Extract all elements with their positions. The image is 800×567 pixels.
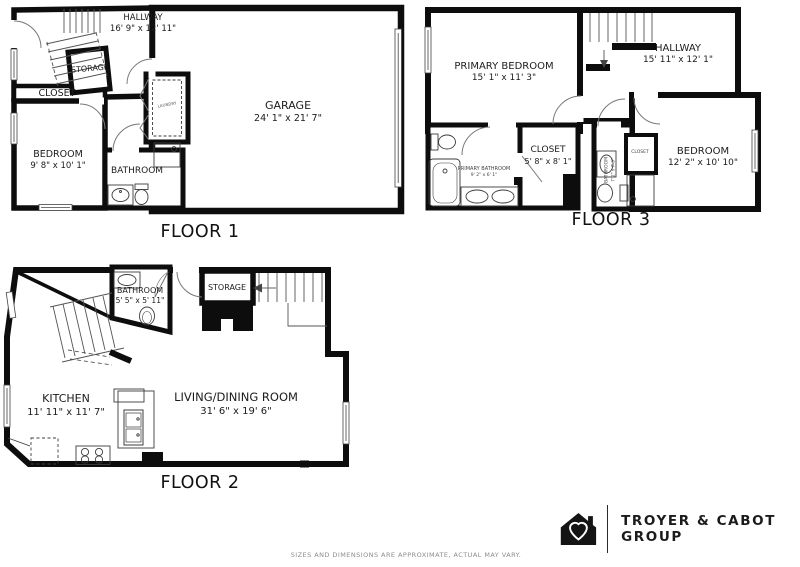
room-label-f1-hallway: HALLWAY 16' 9" x 12' 11" [110, 13, 176, 35]
room-label-f1-closet: CLOSET [39, 88, 76, 100]
floor2-plan [4, 267, 349, 468]
floor3-plan [425, 10, 758, 209]
room-name: CLOSET [631, 150, 648, 155]
room-label-f2-bathroom: BATHROOM 5' 5" x 5' 11" [116, 286, 165, 306]
plumbing-wall [563, 174, 578, 207]
room-label-f3-closet: CLOSET 5' 8" x 8' 1" [524, 145, 571, 167]
room-label-f3-bedroom: BEDROOM 12' 2" x 10' 10" [668, 145, 738, 170]
brand-logo: TROYER & CABOT GROUP [560, 505, 800, 553]
room-name: PRIMARY BATHROOM [458, 166, 510, 172]
room-name: BATHROOM [604, 157, 609, 183]
room-dims: 9' 8" x 10' 1" [30, 161, 85, 172]
room-label-f2-storage: STORAGE [208, 283, 246, 293]
room-label-f1-bathroom: BATHROOM [111, 166, 163, 178]
garage-door-icon [395, 29, 402, 187]
room-label-f2-living: LIVING/DINING ROOM 31' 6" x 19' 6" [174, 390, 298, 418]
room-name: CLOSET [531, 145, 566, 155]
room-dims: 5' 5" x 5' 11" [116, 296, 165, 306]
floorplan-page: HALLWAY 16' 9" x 12' 11" STORAGE CLOSET … [0, 0, 800, 567]
room-label-f3-bathroom: BATHROOM 7' 2" x 7' 3" [604, 157, 615, 183]
room-label-f3-primary-bathroom: PRIMARY BATHROOM 9' 2" x 6' 1" [458, 166, 510, 178]
room-label-f3-hallway: HALLWAY 15' 11" x 12' 1" [643, 42, 713, 67]
floor1-plan [11, 8, 402, 211]
room-name: STORAGE [71, 62, 110, 74]
room-label-f3-primary-bedroom: PRIMARY BEDROOM 15' 1" x 11' 3" [454, 60, 553, 85]
brand-divider [607, 505, 608, 553]
floor2-title: FLOOR 2 [160, 473, 239, 493]
room-dims: 5' 8" x 8' 1" [524, 157, 571, 167]
room-name: STORAGE [208, 283, 246, 292]
floor3-title: FLOOR 3 [571, 210, 650, 230]
room-dims: 15' 1" x 11' 3" [454, 73, 553, 85]
room-name: BEDROOM [33, 149, 83, 160]
room-name: HALLWAY [123, 13, 162, 23]
room-dims: 11' 11" x 11' 7" [27, 406, 105, 419]
room-name: BEDROOM [677, 146, 729, 157]
room-name: PRIMARY BEDROOM [454, 61, 553, 72]
room-dims: 15' 11" x 12' 1" [643, 55, 713, 67]
floor3-walls [428, 10, 758, 209]
room-dims: 12' 2" x 10' 10" [668, 158, 738, 170]
room-name: BATHROOM [111, 166, 163, 176]
room-label-f1-bedroom: BEDROOM 9' 8" x 10' 1" [30, 149, 85, 172]
brand-name: TROYER & CABOT GROUP [621, 513, 800, 545]
disclaimer-text: SIZES AND DIMENSIONS ARE APPROXIMATE, AC… [291, 551, 522, 559]
room-name: KITCHEN [42, 392, 90, 405]
room-dims: 7' 2" x 7' 3" [610, 157, 615, 183]
room-name: CLOSET [39, 88, 76, 99]
room-dims: 24' 1" x 21' 7" [254, 113, 322, 125]
room-dims: 9' 2" x 6' 1" [458, 173, 510, 179]
room-label-f1-garage: GARAGE 24' 1" x 21' 7" [254, 99, 322, 126]
room-name: LIVING/DINING ROOM [174, 390, 298, 404]
floorplan-drawing [0, 0, 800, 567]
house-heart-logo-icon [560, 508, 597, 550]
room-label-f3-closet-small: CLOSET [631, 150, 648, 156]
room-dims: 31' 6" x 19' 6" [174, 405, 298, 418]
room-name: BATHROOM [117, 286, 163, 295]
room-dims: 16' 9" x 12' 11" [110, 24, 176, 35]
room-name: GARAGE [265, 99, 311, 112]
room-name: HALLWAY [655, 43, 701, 54]
floor1-title: FLOOR 1 [160, 222, 239, 242]
room-label-f2-kitchen: KITCHEN 11' 11" x 11' 7" [27, 392, 105, 419]
